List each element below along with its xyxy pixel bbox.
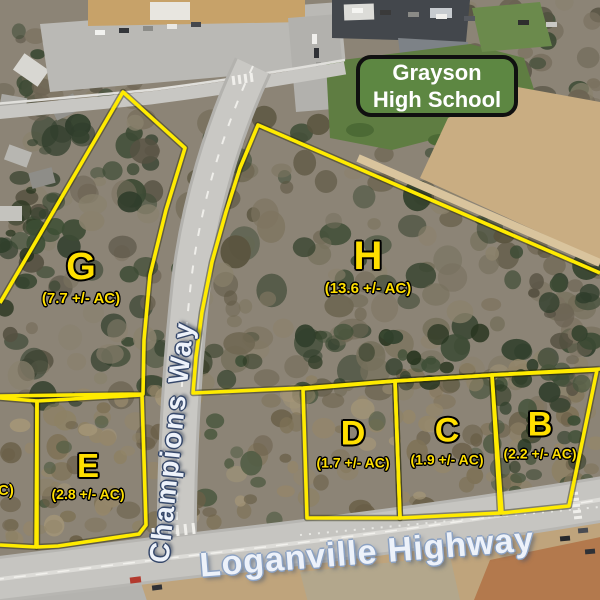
aerial-photo	[0, 0, 600, 600]
lawn-strip-east	[472, 2, 552, 52]
aerial-parcel-map: G (7.7 +/- AC) H (13.6 +/- AC) E (2.8 +/…	[0, 0, 600, 600]
